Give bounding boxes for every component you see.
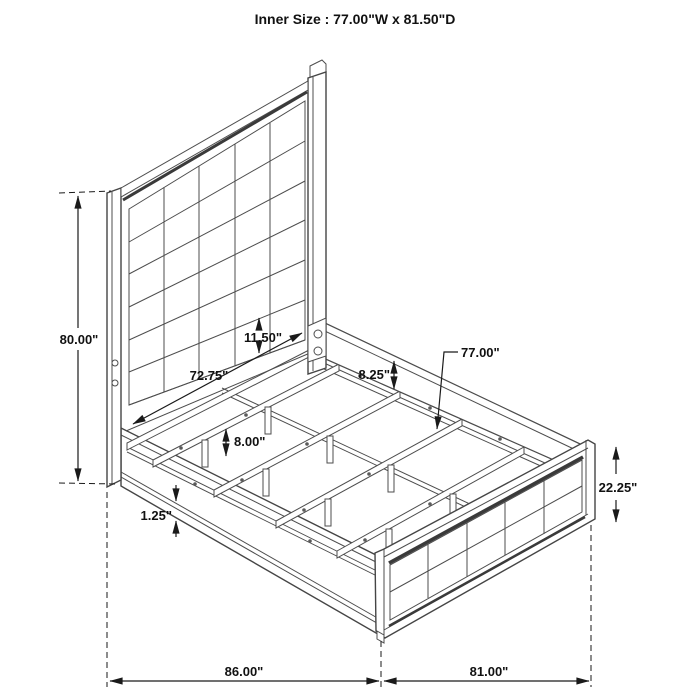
dim-label-leg-height: 8.00" [234,434,265,449]
diagram-canvas: 80.00" 72.75" 11.50" 8.25" 77.00" 8.00" … [0,0,700,700]
headboard [107,60,326,487]
headboard-panel [129,101,305,405]
dim-overall-depth: 86.00" [110,664,379,681]
dim-label-rail-trim: 1.25" [141,508,172,523]
dim-label-headboard-height: 80.00" [60,332,99,347]
dim-label-overall-depth: 86.00" [225,664,264,679]
page-title: Inner Size : 77.00"W x 81.50"D [255,11,456,27]
dim-label-inner-width: 72.75" [190,368,229,383]
dim-label-overall-width: 81.00" [470,664,509,679]
dim-footboard-height: 22.25" [599,447,638,522]
dim-overall-width: 81.00" [384,664,589,681]
rail-bracket [308,318,326,362]
dim-leg-height: 8.00" [226,429,265,456]
dim-label-footboard-height: 22.25" [599,480,638,495]
headboard-left-post [107,188,121,487]
bed-dimension-diagram: 80.00" 72.75" 11.50" 8.25" 77.00" 8.00" … [0,0,700,700]
dim-label-slat-width: 77.00" [461,345,500,360]
side-rail-far [310,316,582,468]
dim-label-rail-height: 8.25" [359,367,390,382]
dim-label-panel-bottom: 11.50" [244,330,282,345]
